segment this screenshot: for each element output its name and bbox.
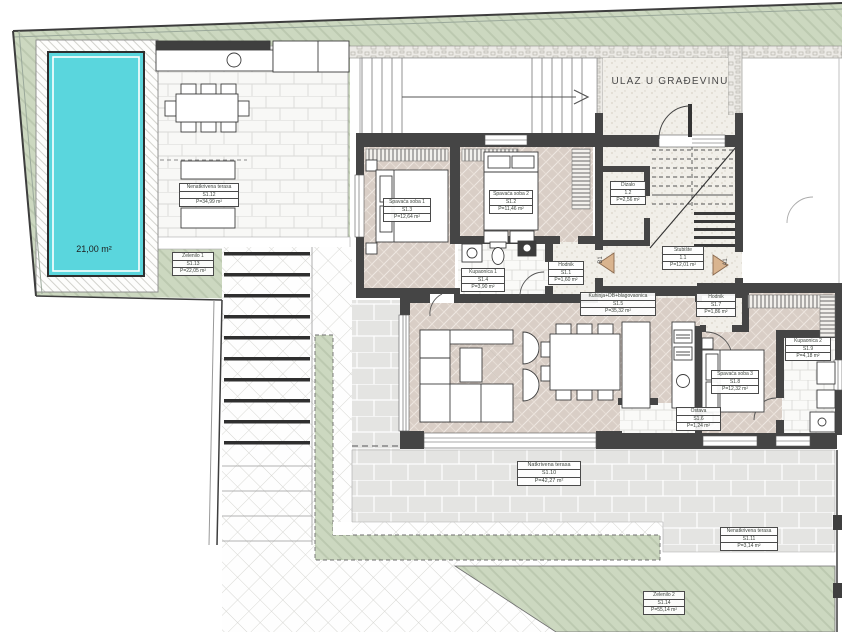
bathroom2-south-window — [776, 436, 810, 446]
pergola-beam — [156, 41, 270, 50]
room-area: P=3,90 m² — [462, 283, 504, 291]
pool — [48, 52, 144, 276]
room-code: S1.4 — [462, 276, 504, 284]
sink — [817, 362, 835, 384]
room-name: Spavaća soba 1 — [384, 199, 430, 206]
room-code: S1.2 — [490, 198, 532, 206]
room-code: 1.1 — [663, 254, 703, 262]
toilet — [492, 248, 504, 265]
room-label-spavaca-soba-3: Spavaća soba 3 S1.8 P=12,32 m² — [711, 370, 759, 394]
room-label-zelenilo-1: Zelenilo 1 S1.13 P=22,05 m² — [172, 252, 214, 276]
oven — [674, 330, 692, 343]
toilet2 — [817, 390, 835, 408]
room-name: Nenatkrivena terasa — [721, 528, 777, 535]
dining-table — [541, 324, 620, 400]
room-area: P=34,99 m² — [180, 198, 238, 206]
kitchen-island — [622, 322, 650, 408]
room-label-dizalo: Dizalo 1.2 P=2,56 m² — [610, 181, 646, 205]
room-label-zelenilo-2: Zelenilo 2 S1.14 P=55,14 m² — [643, 591, 685, 615]
room-area: P=35,32 m² — [581, 307, 655, 315]
room-name: Kuhinja+DB+blagovaonica — [581, 293, 655, 300]
bedroom3-south-window — [703, 436, 757, 446]
room-code: S1.14 — [644, 599, 684, 607]
room-label-spavaca-soba-2: Spavaća soba 2 S1.2 P=11,46 m² — [489, 190, 533, 214]
room-label-kupaonica-1: Kupaonica 1 S1.4 P=3,90 m² — [461, 268, 505, 292]
room-area: P=55,14 m² — [644, 606, 684, 614]
room-label-ostava: Ostava S1.6 P=1,24 m² — [676, 407, 721, 431]
north-window — [485, 135, 527, 145]
room-code: S1.8 — [712, 378, 758, 386]
room-code: S1.13 — [173, 260, 213, 268]
room-code: S1.3 — [384, 206, 430, 214]
room-label-kuhinja-db-blagovaonica: Kuhinja+DB+blagovaonica S1.5 P=35,32 m² — [580, 292, 656, 316]
room-area: P=12,01 m² — [663, 261, 703, 269]
living-south-glazing — [424, 433, 596, 448]
room-code: S1.7 — [697, 301, 735, 309]
section-marker-b1: B1 — [598, 253, 604, 267]
room-area: P=1,24 m² — [677, 422, 720, 430]
room-name: Nenatkrivena terasa — [180, 184, 238, 191]
living-west-window — [399, 315, 409, 431]
room-label-natkrivena-terasa: Natkrivena terasa S1.10 P=42,27 m² — [517, 461, 581, 486]
floor-plan-page: 21,00 m² ULAZ U GRAĐEVINU Nenatkrivena t… — [0, 0, 842, 632]
pool-area-label: 21,00 m² — [62, 244, 126, 254]
bedroom1-west-window — [355, 175, 364, 237]
room-area: P=11,46 m² — [490, 205, 532, 213]
room-name: Natkrivena terasa — [518, 462, 580, 469]
outdoor-table — [176, 94, 238, 122]
coffee-table — [460, 348, 482, 382]
room-label-stubiste: Stubište 1.1 P=12,01 m² — [662, 246, 704, 270]
room-label-spavaca-soba-1: Spavaća soba 1 S1.3 P=12,64 m² — [383, 198, 431, 222]
outdoor-sink — [227, 53, 241, 67]
kitchen-sink — [677, 375, 690, 388]
room-area: P=1,60 m² — [549, 276, 583, 284]
room-area: P=12,32 m² — [712, 385, 758, 393]
room-area: P=1,86 m² — [697, 308, 735, 316]
room-code: S1.10 — [518, 469, 580, 477]
room-name: Spavaća soba 3 — [712, 371, 758, 378]
section-marker-a1: A1 — [723, 255, 729, 269]
appliance — [674, 347, 692, 360]
room-code: S1.1 — [549, 269, 583, 277]
room-area: P=3,14 m² — [721, 542, 777, 550]
room-label-hodnik-s11: Hodnik S1.1 P=1,60 m² — [548, 261, 584, 285]
room-area: P=42,27 m² — [518, 477, 580, 485]
entrance-label: ULAZ U GRAĐEVINU — [608, 76, 732, 87]
room-code: S1.11 — [721, 535, 777, 543]
room-label-nenatkrivena-terasa-s111: Nenatkrivena terasa S1.11 P=3,14 m² — [720, 527, 778, 551]
room-area: P=2,56 m² — [611, 196, 645, 204]
room-code: S1.6 — [677, 415, 720, 423]
room-code: 1.2 — [611, 189, 645, 197]
room-code: S1.9 — [786, 345, 830, 353]
entrance-steps — [360, 58, 597, 135]
room-label-nenatkrivena-terasa-s112: Nenatkrivena terasa S1.12 P=34,99 m² — [179, 183, 239, 207]
room-area: P=22,05 m² — [173, 267, 213, 275]
room-name: Spavaća soba 2 — [490, 191, 532, 198]
room-area: P=12,64 m² — [384, 213, 430, 221]
room-label-hodnik-s17: Hodnik S1.7 P=1,86 m² — [696, 293, 736, 317]
room-code: S1.5 — [581, 300, 655, 308]
room-area: P=4,18 m² — [786, 352, 830, 360]
room-label-kupaonica-2: Kupaonica 2 S1.9 P=4,18 m² — [785, 337, 831, 361]
outdoor-counter — [156, 41, 349, 72]
room-code: S1.12 — [180, 191, 238, 199]
